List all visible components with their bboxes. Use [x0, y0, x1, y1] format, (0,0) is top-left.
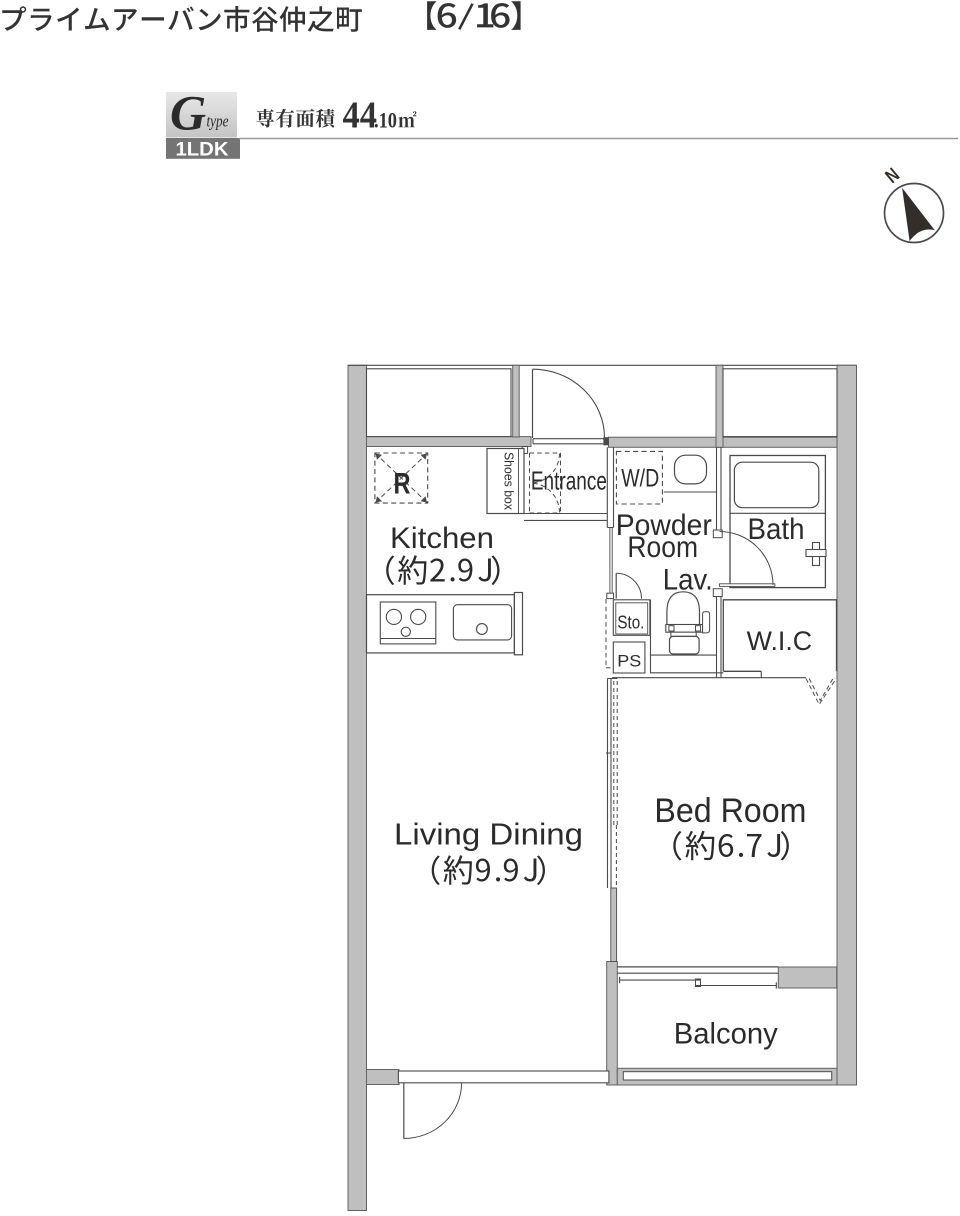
svg-text:Sto.: Sto.	[617, 612, 644, 632]
svg-text:.10: .10	[374, 107, 397, 132]
svg-text:PS: PS	[617, 653, 641, 671]
svg-text:Balcony: Balcony	[674, 1018, 778, 1051]
svg-text:Kitchen: Kitchen	[390, 522, 494, 555]
svg-text:Bed Room: Bed Room	[654, 792, 806, 830]
svg-text:Shoes box: Shoes box	[502, 452, 517, 510]
svg-text:W.I.C: W.I.C	[747, 626, 813, 656]
svg-text:Bath: Bath	[748, 513, 805, 546]
svg-text:44: 44	[343, 94, 378, 136]
svg-text:Living Dining: Living Dining	[394, 816, 583, 851]
svg-text:1LDK: 1LDK	[176, 138, 229, 160]
svg-text:Room: Room	[627, 531, 698, 564]
svg-text:Entrance: Entrance	[531, 465, 607, 495]
svg-text:type: type	[207, 112, 229, 131]
svg-text:R: R	[394, 468, 411, 501]
svg-text:G: G	[170, 85, 206, 141]
svg-text:W/D: W/D	[621, 465, 659, 493]
